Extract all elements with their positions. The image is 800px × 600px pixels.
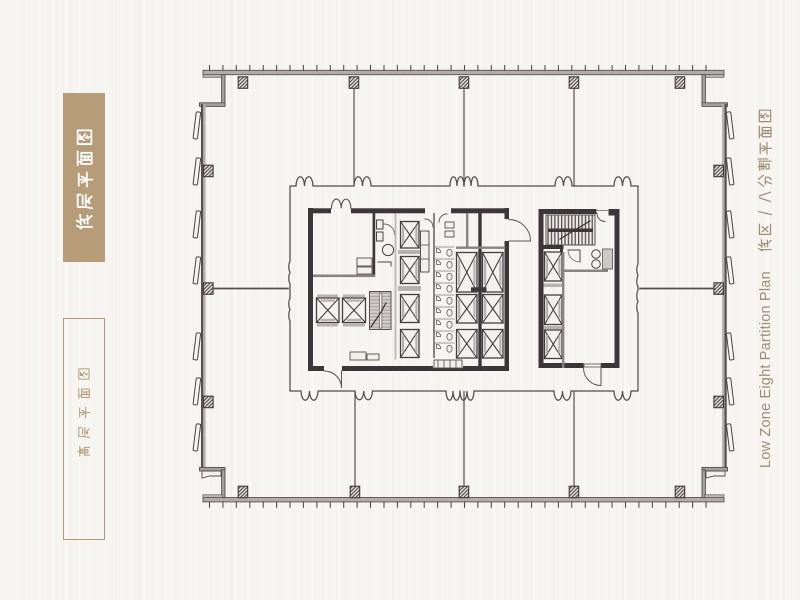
svg-text:Low Zone Eight Partition Plan: Low Zone Eight Partition Plan xyxy=(758,271,774,468)
